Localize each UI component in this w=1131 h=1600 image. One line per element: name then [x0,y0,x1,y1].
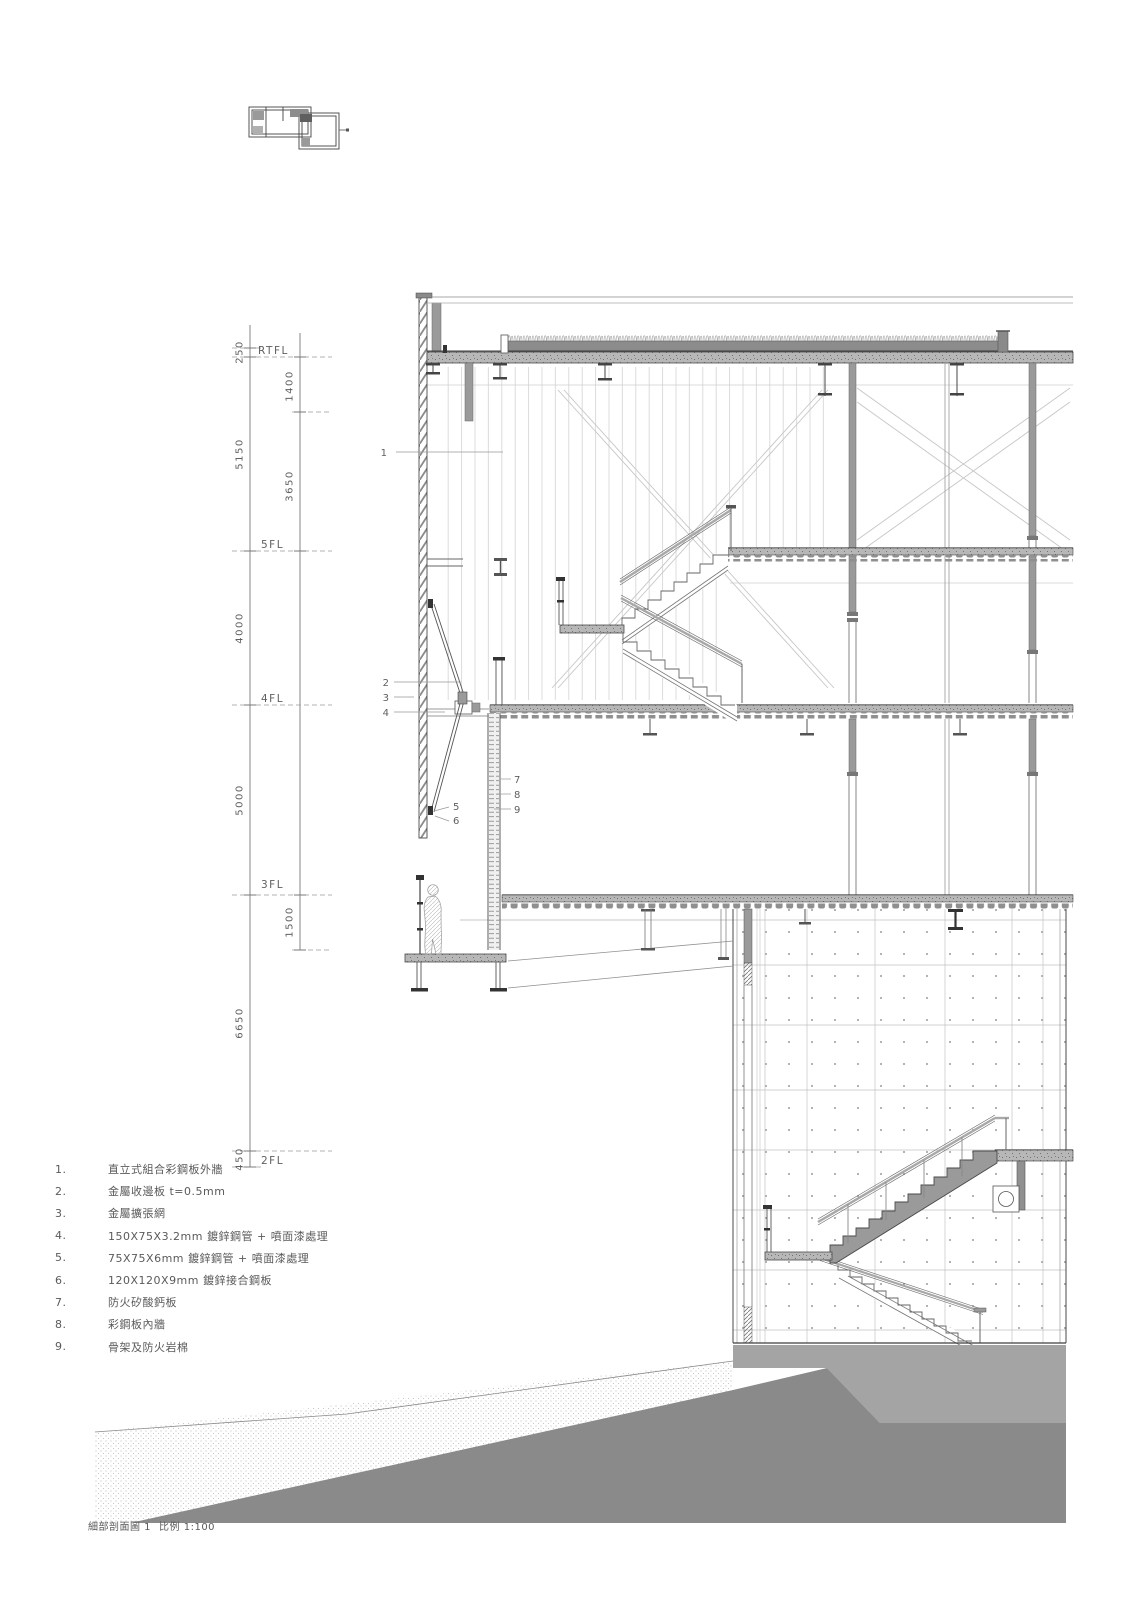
dim-6650: 6650 [235,1007,246,1038]
level-4fl: 4FL [261,693,284,705]
legend-text: 彩鋼板內牆 [108,1316,166,1332]
level-3fl: 3FL [261,879,284,891]
floor-slab-5fl [728,548,1073,562]
legend-number: 7. [55,1296,108,1309]
callout-9: 9 [514,805,520,816]
callout-5: 5 [453,802,459,813]
callout-4: 4 [383,708,389,719]
legend-text: 金屬收邊板 t=0.5mm [108,1183,225,1199]
dim-5150: 5150 [235,438,246,469]
caption-title: 細部剖面圖 1 [88,1522,151,1533]
legend-text: 防火矽酸鈣板 [108,1294,177,1310]
level-rtfl: RTFL [258,345,289,357]
legend-number: 3. [55,1207,108,1220]
legend-text: 150X75X3.2mm 鍍鋅鋼管 + 噴面漆處理 [108,1228,328,1244]
ground [95,1345,1066,1523]
level-5fl: 5FL [261,539,284,551]
roof-anchor [443,345,447,353]
section-drawing-canvas: 250 5150 4000 5000 6650 450 1400 3650 15… [0,0,1131,1600]
drawing-sheet: 250 5150 4000 5000 6650 450 1400 3650 15… [0,0,1131,1600]
legend-number: 1. [55,1163,108,1176]
roof-assembly [427,297,1073,363]
roof-slab [427,352,1073,363]
canopy-platform [405,954,507,992]
material-legend: 1.直立式組合彩鋼板外牆 2.金屬收邊板 t=0.5mm 3.金屬擴張網 4.1… [55,1158,328,1358]
roof-edge-post [465,363,473,421]
sloped-soffit [508,941,733,988]
floor-slab-4fl [490,705,1073,719]
legend-number: 6. [55,1274,108,1287]
legend-text: 直立式組合彩鋼板外牆 [108,1161,223,1177]
roof-curb [501,335,508,353]
dimension-column: 250 5150 4000 5000 6650 450 1400 3650 15… [232,325,332,1171]
legend-text: 120X120X9mm 鍍鋅接合鋼板 [108,1272,272,1288]
legend-number: 8. [55,1318,108,1331]
pipe-sleeve [999,1192,1014,1207]
cladding-lines-left [437,367,725,700]
callout-6: 6 [453,816,459,827]
steel-columns [847,363,1038,895]
floor-slab-3fl [502,895,1073,909]
legend-item-1: 1.直立式組合彩鋼板外牆 [55,1158,328,1180]
dim-4000: 4000 [235,612,246,643]
parapet-flashing [432,303,441,355]
roof-vent [998,331,1008,352]
stair-landing [765,1252,832,1260]
dim-3650: 3650 [285,470,296,501]
legend-text: 75X75X6mm 鍍鋅鋼管 + 噴面漆處理 [108,1250,309,1266]
legend-item-3: 3.金屬擴張網 [55,1202,328,1224]
legend-item-5: 5.75X75X6mm 鍍鋅鋼管 + 噴面漆處理 [55,1247,328,1269]
drawing-caption: 細部剖面圖 1比例 1:100 [88,1518,223,1533]
green-roof-substrate [507,341,1003,352]
callout-3: 3 [383,693,389,704]
key-plan [249,107,349,149]
legend-item-6: 6.120X120X9mm 鍍鋅接合鋼板 [55,1269,328,1291]
building-section [405,293,1073,1352]
callout-1: 1 [381,448,387,459]
legend-number: 9. [55,1340,108,1353]
callout-2: 2 [383,678,389,689]
legend-number: 2. [55,1185,108,1198]
legend-number: 4. [55,1229,108,1242]
caption-scale: 比例 1:100 [159,1522,215,1533]
legend-item-9: 9.骨架及防火岩棉 [55,1336,328,1358]
dim-5000: 5000 [235,784,246,815]
concrete-wall [733,909,1066,1343]
hangers-4fl [643,719,967,736]
person-figure [416,875,442,954]
callout-8: 8 [514,790,520,801]
dim-1500: 1500 [285,906,296,937]
legend-item-7: 7.防火矽酸鈣板 [55,1291,328,1313]
green-roof-grass [507,330,1003,341]
cladding-lines-right [728,367,828,548]
legend-text: 骨架及防火岩棉 [108,1339,189,1355]
dim-250: 250 [235,340,246,364]
legend-text: 金屬擴張網 [108,1205,166,1221]
callout-7: 7 [514,775,520,786]
legend-item-4: 4.150X75X3.2mm 鍍鋅鋼管 + 噴面漆處理 [55,1225,328,1247]
legend-item-2: 2.金屬收邊板 t=0.5mm [55,1180,328,1202]
legend-number: 5. [55,1251,108,1264]
dim-1400: 1400 [285,370,296,401]
legend-item-8: 8.彩鋼板內牆 [55,1313,328,1335]
